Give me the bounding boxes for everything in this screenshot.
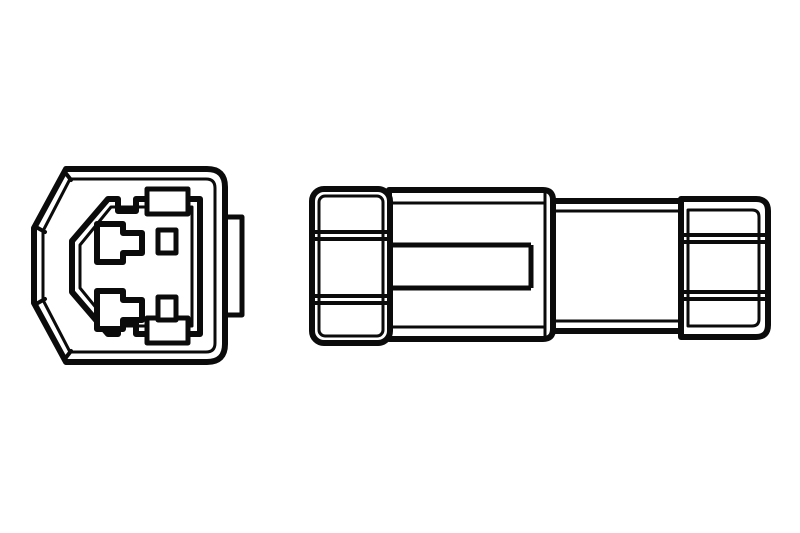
front-contact-slot-1 [158,230,176,253]
drawing-canvas [0,0,800,533]
connector-technical-drawing [0,0,800,533]
side-main-body [389,190,553,339]
side-left-cap [312,189,390,343]
front-contact-slot-2 [158,297,176,320]
side-end-cap [681,199,768,337]
connector-side-view [312,189,768,343]
front-latch-tab-top [147,189,188,214]
side-narrow-section [553,201,681,331]
connector-front-view [34,169,242,362]
